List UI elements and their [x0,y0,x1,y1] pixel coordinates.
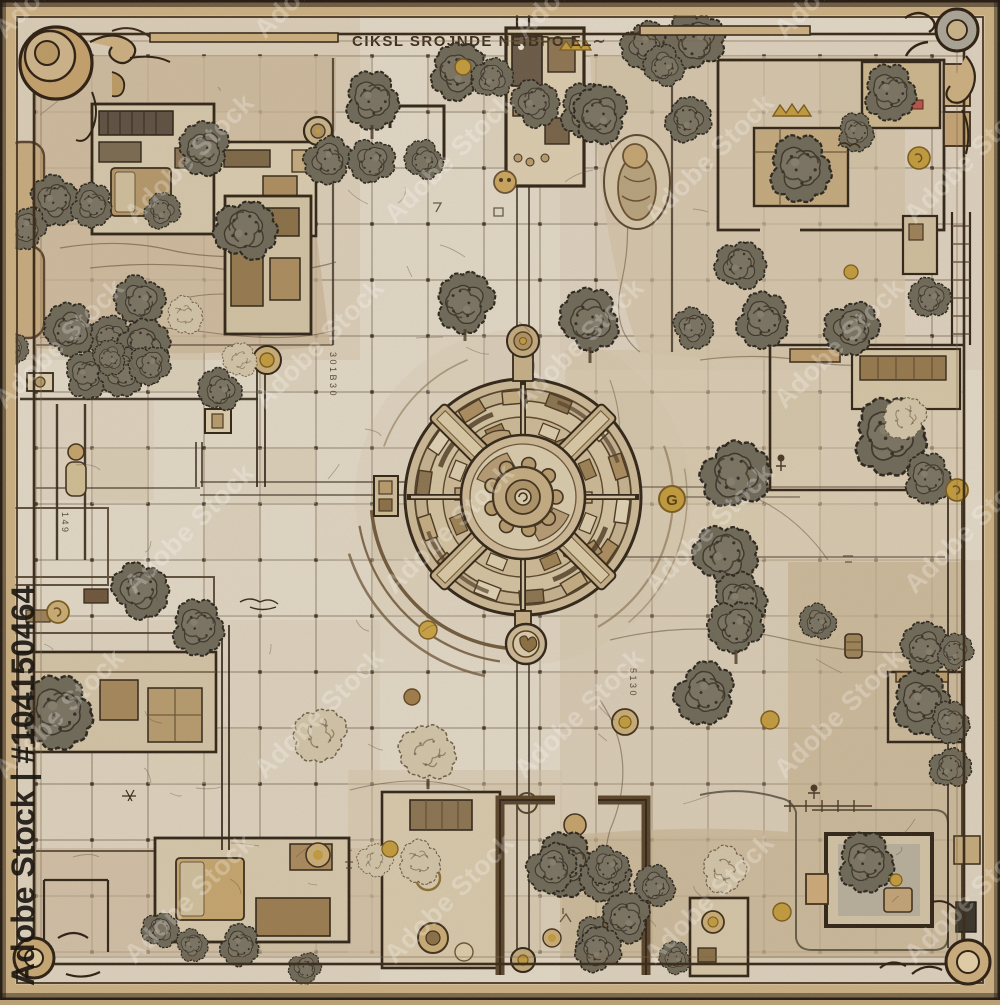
svg-text:Adobe Stock | #104150464: Adobe Stock | #104150464 [5,586,41,986]
